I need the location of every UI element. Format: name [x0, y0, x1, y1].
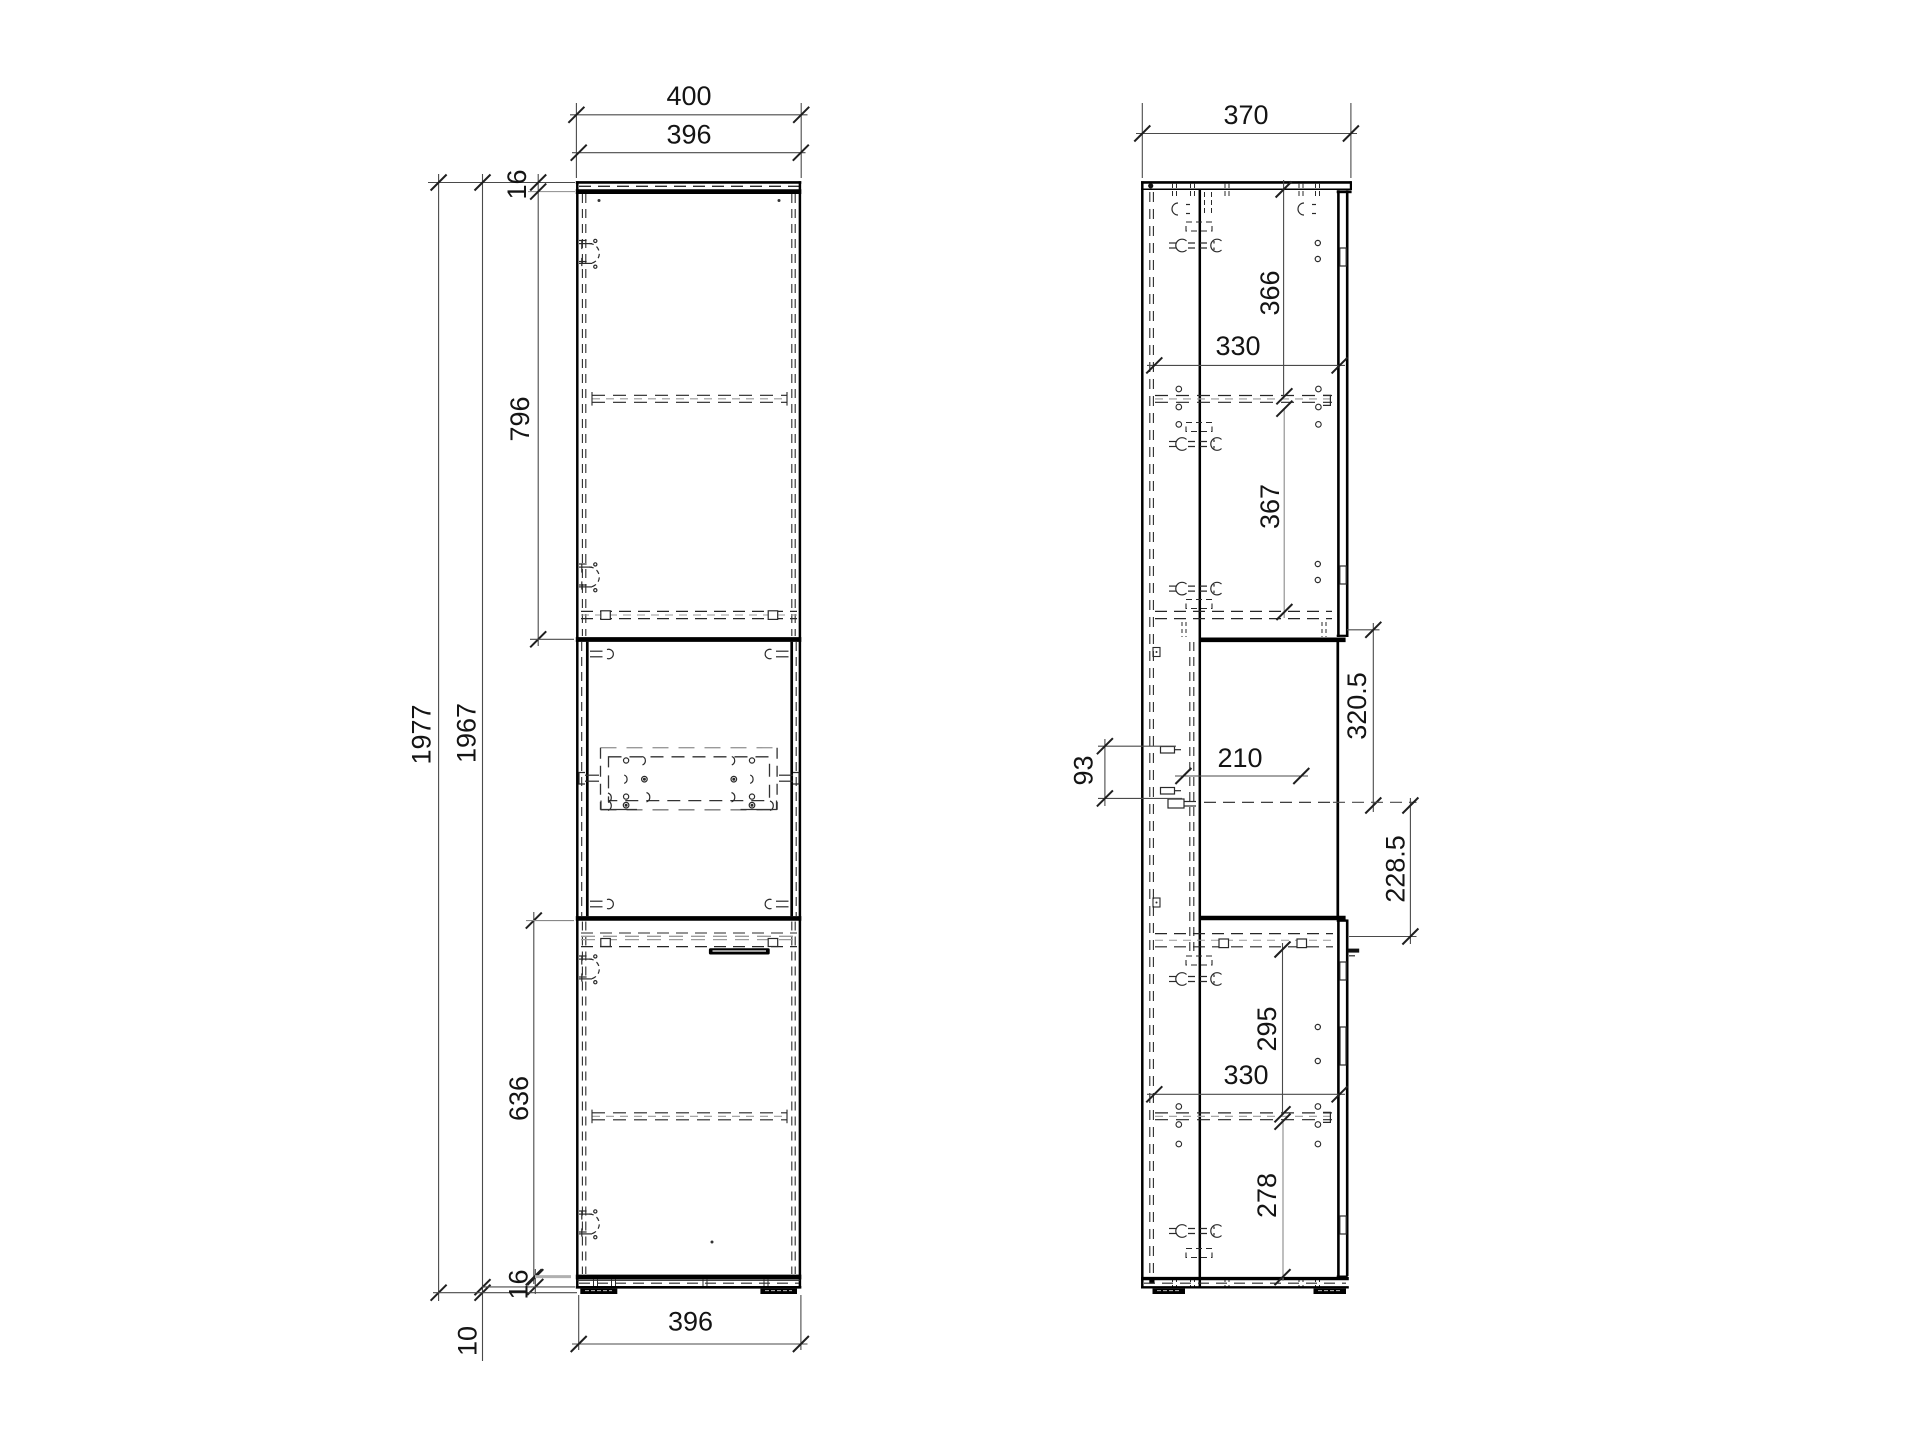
svg-text:278: 278 — [1252, 1173, 1282, 1218]
svg-text:367: 367 — [1255, 484, 1285, 529]
svg-text:396: 396 — [668, 1307, 713, 1337]
svg-text:1967: 1967 — [452, 703, 482, 763]
svg-text:400: 400 — [666, 81, 711, 111]
svg-text:330: 330 — [1223, 1060, 1268, 1090]
svg-text:366: 366 — [1255, 270, 1285, 315]
svg-text:10: 10 — [453, 1326, 483, 1356]
svg-text:636: 636 — [504, 1076, 534, 1121]
svg-text:396: 396 — [666, 120, 711, 150]
svg-text:210: 210 — [1217, 743, 1262, 773]
svg-text:228.5: 228.5 — [1381, 835, 1411, 903]
svg-text:93: 93 — [1069, 755, 1099, 785]
svg-text:796: 796 — [505, 396, 535, 441]
svg-text:16: 16 — [502, 169, 532, 199]
svg-text:16: 16 — [504, 1269, 534, 1299]
svg-text:330: 330 — [1215, 331, 1260, 361]
svg-text:295: 295 — [1252, 1006, 1282, 1051]
svg-text:320.5: 320.5 — [1342, 672, 1372, 740]
svg-text:370: 370 — [1223, 100, 1268, 130]
svg-text:1977: 1977 — [407, 704, 437, 764]
